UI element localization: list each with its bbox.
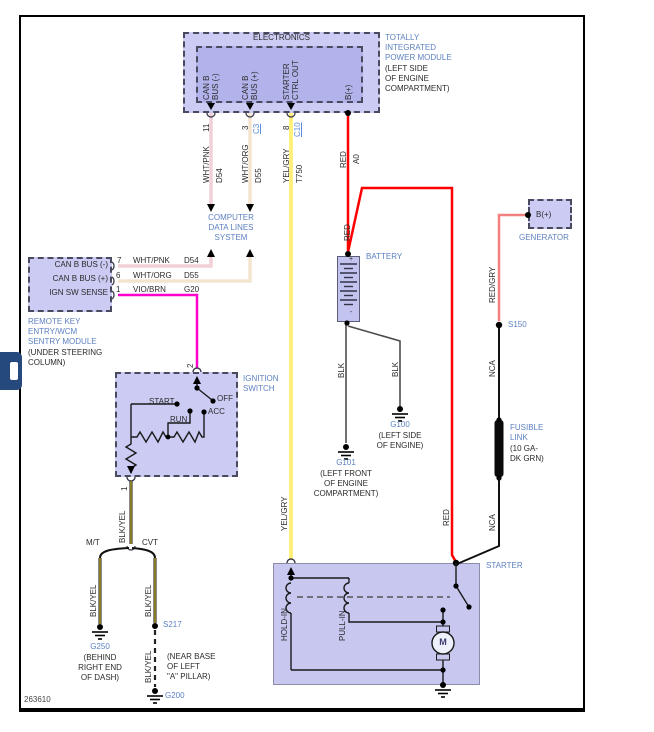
wire-label-blk-right: BLK bbox=[391, 362, 400, 377]
tipm-pin1-signal: CAN B BUS (-) bbox=[202, 73, 220, 100]
starter-hold-in-label: HOLD-IN bbox=[280, 608, 289, 641]
wire-vio-brn bbox=[118, 295, 197, 368]
circuit-label-d54: D54 bbox=[215, 168, 224, 183]
rke-pin1: 1 bbox=[116, 285, 120, 295]
splice-s150 bbox=[496, 322, 502, 328]
wire-label-blk-yel-mt: BLK/YEL bbox=[89, 585, 98, 617]
rke-wire3-color: VIO/BRN bbox=[133, 285, 166, 295]
ground-location-g200: (NEAR BASE OF LEFT "A" PILLAR) bbox=[167, 652, 215, 682]
computer-data-lines-label: COMPUTER DATA LINES SYSTEM bbox=[193, 213, 269, 243]
connector-link-c10[interactable]: C10 bbox=[293, 122, 302, 137]
tipm-pin3-signal: STARTER CTRL OUT bbox=[282, 60, 300, 100]
circuit-label-d55: D55 bbox=[254, 168, 263, 183]
tipm-output-arrows bbox=[207, 103, 295, 110]
wire-label-red-upper: RED bbox=[343, 224, 352, 241]
starter-pull-in-label: PULL-IN bbox=[338, 610, 347, 641]
fusible-link-spec: (10 GA- DK GRN) bbox=[510, 444, 544, 464]
tipm-pin1-number: 11 bbox=[202, 124, 211, 132]
wire-red-gry bbox=[499, 212, 531, 321]
ground-location-g250: (BEHIND RIGHT END OF DASH) bbox=[68, 653, 132, 683]
ignition-pos-acc: ACC bbox=[208, 407, 225, 417]
battery-minus: - bbox=[350, 308, 352, 318]
diagram-id: 263610 bbox=[24, 695, 51, 705]
wire-label-blk-yel-dashed: BLK/YEL bbox=[144, 651, 153, 683]
rke-wire2-color: WHT/ORG bbox=[133, 271, 172, 281]
generator-pin-b-plus: B(+) bbox=[536, 210, 551, 220]
ignition-pos-off: OFF bbox=[217, 394, 233, 404]
tipm-header: ELECTRONICS bbox=[183, 33, 380, 43]
starter-motor-letter: M bbox=[436, 637, 450, 647]
rke-row1-signal: CAN B BUS (-) bbox=[30, 260, 108, 270]
rke-pin-arcs bbox=[112, 262, 114, 299]
wire-label-blk-yel-cvt: BLK/YEL bbox=[144, 585, 153, 617]
rke-pin6: 6 bbox=[116, 271, 120, 281]
wire-label-red: RED bbox=[339, 151, 348, 168]
wire-label-red-gry: RED/GRY bbox=[488, 267, 497, 303]
connector-link-c3[interactable]: C3 bbox=[252, 124, 261, 134]
circuit-label-a0: A0 bbox=[352, 154, 361, 164]
rke-row2-signal: CAN B BUS (+) bbox=[30, 274, 108, 284]
rke-title: REMOTE KEY ENTRY/WCM SENTRY MODULE bbox=[28, 317, 97, 347]
branch-label-mt: M/T bbox=[86, 538, 100, 548]
generator-label: GENERATOR bbox=[519, 233, 569, 243]
ground-g200 bbox=[147, 688, 163, 703]
tipm-location: (LEFT SIDE OF ENGINE COMPARTMENT) bbox=[385, 64, 450, 94]
circuit-label-t750: T750 bbox=[295, 165, 304, 183]
wire-label-wht-pnk: WHT/PNK bbox=[202, 146, 211, 183]
tipm-pin4-signal: B(+) bbox=[344, 85, 353, 100]
ignition-pos-run: RUN bbox=[170, 415, 187, 425]
ground-g100 bbox=[392, 406, 408, 421]
ground-starter bbox=[435, 690, 451, 697]
ground-id-g250: G250 bbox=[75, 642, 125, 652]
fusible-link-label: FUSIBLE LINK bbox=[510, 423, 543, 443]
rke-location: (UNDER STEERING COLUMN) bbox=[28, 348, 102, 368]
starter-label: STARTER bbox=[486, 561, 523, 571]
battery-label: BATTERY bbox=[366, 252, 402, 262]
wire-label-wht-org: WHT/ORG bbox=[241, 144, 250, 183]
rke-row3-signal: IGN SW SENSE bbox=[30, 288, 108, 298]
rke-circuit3: G20 bbox=[184, 285, 199, 295]
battery-plus: + bbox=[349, 255, 353, 265]
tipm-pin2-signal: CAN B BUS (+) bbox=[241, 71, 259, 100]
branch-label-cvt: CVT bbox=[142, 538, 158, 548]
battery-symbol bbox=[340, 264, 357, 305]
wire-label-yel-gry-lower: YEL/GRY bbox=[280, 496, 289, 531]
ignition-switch-title: IGNITION SWITCH bbox=[243, 374, 279, 394]
wire-label-blk-left: BLK bbox=[337, 363, 346, 378]
rke-pin7: 7 bbox=[117, 256, 121, 266]
ground-id-g100: G100 bbox=[375, 420, 425, 430]
wire-label-nca-lower: NCA bbox=[488, 514, 497, 531]
ignition-pin2: 2 bbox=[186, 364, 195, 368]
ignition-contact-dots bbox=[127, 376, 216, 474]
wire-label-blk-yel-main: BLK/YEL bbox=[118, 511, 127, 543]
ground-id-g200: G200 bbox=[165, 691, 185, 701]
ignition-switch-symbol bbox=[126, 368, 212, 481]
splice-label-s150: S150 bbox=[508, 320, 527, 330]
fusible-link-symbol bbox=[495, 417, 504, 480]
rke-circuit2: D55 bbox=[184, 271, 199, 281]
wire-blk-g101 bbox=[344, 320, 349, 443]
wire-label-yel-gry: YEL/GRY bbox=[282, 148, 291, 183]
wiring-diagram-page: ELECTRONICS CAN B BUS (-) CAN B BUS (+) … bbox=[0, 0, 654, 732]
rke-wire1-color: WHT/PNK bbox=[133, 256, 170, 266]
ignition-pos-start: START bbox=[149, 397, 174, 407]
tipm-title: TOTALLY INTEGRATED POWER MODULE bbox=[385, 33, 452, 63]
ignition-pin1: 1 bbox=[120, 487, 129, 491]
ground-id-g101: G101 bbox=[321, 458, 371, 468]
wire-label-nca-upper: NCA bbox=[488, 360, 497, 377]
ground-g250 bbox=[92, 624, 108, 639]
ground-location-g100: (LEFT SIDE OF ENGINE) bbox=[370, 431, 430, 451]
rke-circuit1: D54 bbox=[184, 256, 199, 266]
splice-label-s217: S217 bbox=[163, 620, 182, 630]
wire-label-red-lower: RED bbox=[442, 509, 451, 526]
ground-location-g101: (LEFT FRONT OF ENGINE COMPARTMENT) bbox=[311, 469, 381, 499]
tipm-pin2-number: 3 bbox=[241, 126, 250, 130]
ground-g101 bbox=[338, 444, 354, 459]
tipm-pin3-number: 8 bbox=[282, 126, 291, 130]
